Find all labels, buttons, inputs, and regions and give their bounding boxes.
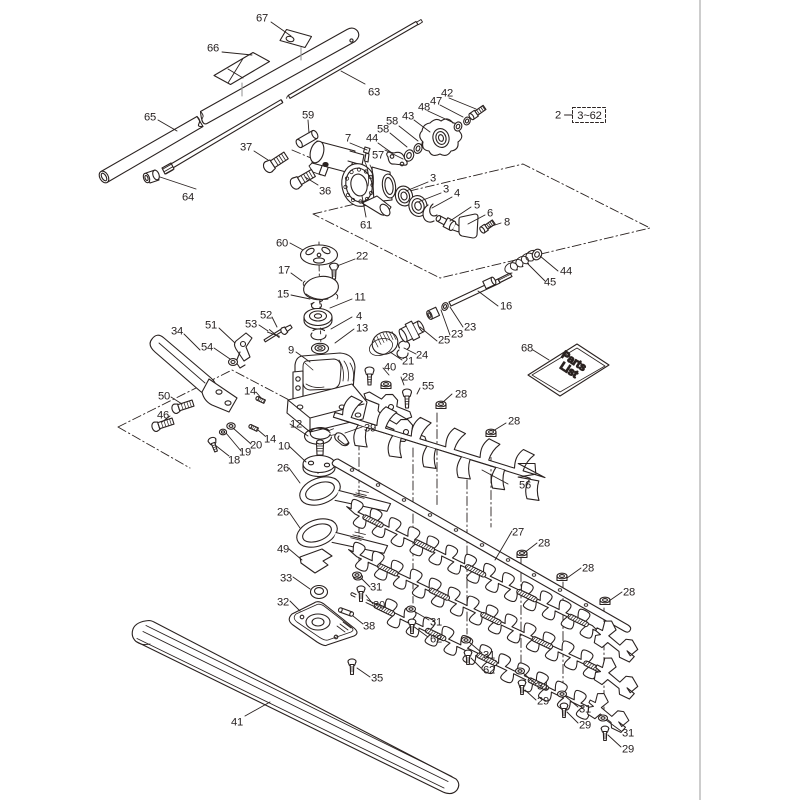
svg-text:61: 61 — [360, 220, 372, 232]
svg-text:5: 5 — [474, 200, 480, 212]
svg-text:49: 49 — [277, 544, 289, 556]
svg-text:28: 28 — [455, 389, 467, 401]
svg-text:31: 31 — [579, 704, 591, 716]
svg-text:24: 24 — [416, 350, 428, 362]
svg-text:3~62: 3~62 — [577, 110, 601, 122]
svg-text:56: 56 — [519, 480, 531, 492]
svg-text:21: 21 — [402, 356, 414, 368]
svg-text:11: 11 — [354, 292, 365, 304]
svg-text:14: 14 — [264, 434, 276, 446]
svg-text:31: 31 — [483, 650, 495, 662]
svg-text:31: 31 — [430, 617, 442, 629]
svg-text:15: 15 — [277, 289, 289, 301]
svg-text:33: 33 — [280, 573, 292, 585]
svg-text:3: 3 — [430, 173, 436, 185]
svg-text:29: 29 — [579, 720, 591, 732]
svg-text:52: 52 — [260, 310, 272, 322]
svg-text:53: 53 — [245, 319, 257, 331]
svg-text:10: 10 — [278, 441, 290, 453]
svg-text:60: 60 — [276, 238, 288, 250]
svg-text:26: 26 — [277, 463, 289, 475]
svg-text:63: 63 — [368, 87, 380, 99]
svg-text:27: 27 — [512, 527, 524, 539]
svg-text:9: 9 — [288, 345, 294, 357]
svg-text:22: 22 — [356, 251, 368, 263]
svg-text:2: 2 — [555, 110, 561, 122]
svg-text:31: 31 — [537, 681, 549, 693]
svg-text:65: 65 — [144, 112, 156, 124]
svg-text:59: 59 — [302, 110, 314, 122]
svg-text:31: 31 — [622, 728, 634, 740]
svg-text:6: 6 — [487, 208, 493, 220]
svg-text:4: 4 — [356, 311, 362, 323]
svg-text:50: 50 — [158, 391, 170, 403]
svg-text:58: 58 — [386, 116, 398, 128]
svg-text:55: 55 — [422, 381, 434, 393]
svg-text:28: 28 — [623, 587, 635, 599]
svg-text:68: 68 — [521, 343, 533, 355]
svg-text:29: 29 — [622, 744, 634, 756]
svg-text:35: 35 — [371, 673, 383, 685]
svg-text:40: 40 — [384, 362, 396, 374]
svg-text:23: 23 — [464, 322, 476, 334]
svg-text:54: 54 — [201, 342, 213, 354]
svg-text:36: 36 — [319, 186, 331, 198]
svg-text:57: 57 — [372, 150, 384, 162]
svg-text:12: 12 — [290, 419, 302, 431]
svg-text:62: 62 — [430, 634, 442, 646]
svg-text:31: 31 — [370, 582, 382, 594]
svg-text:38: 38 — [363, 621, 375, 633]
svg-text:18: 18 — [228, 455, 240, 467]
svg-text:39: 39 — [364, 423, 376, 435]
svg-text:41: 41 — [231, 717, 243, 729]
svg-text:19: 19 — [239, 447, 251, 459]
svg-text:67: 67 — [256, 13, 268, 25]
svg-text:23: 23 — [451, 329, 463, 341]
svg-text:4: 4 — [454, 188, 460, 200]
svg-text:25: 25 — [438, 335, 450, 347]
svg-text:43: 43 — [402, 111, 414, 123]
svg-text:46: 46 — [157, 410, 169, 422]
svg-text:16: 16 — [500, 301, 512, 313]
svg-text:44: 44 — [560, 266, 572, 278]
svg-text:7: 7 — [345, 133, 351, 145]
svg-text:32: 32 — [277, 597, 289, 609]
svg-text:28: 28 — [582, 563, 594, 575]
svg-text:42: 42 — [441, 88, 453, 100]
svg-text:17: 17 — [278, 265, 290, 277]
svg-text:14: 14 — [244, 386, 256, 398]
svg-text:64: 64 — [182, 192, 194, 204]
svg-text:28: 28 — [538, 538, 550, 550]
svg-text:62: 62 — [483, 665, 495, 677]
svg-text:26: 26 — [277, 507, 289, 519]
svg-text:45: 45 — [544, 277, 556, 289]
svg-text:34: 34 — [171, 326, 183, 338]
svg-text:29: 29 — [537, 696, 549, 708]
svg-text:51: 51 — [205, 320, 217, 332]
svg-text:48: 48 — [418, 102, 430, 114]
svg-text:66: 66 — [207, 43, 219, 55]
svg-text:8: 8 — [504, 217, 510, 229]
svg-text:30: 30 — [373, 600, 385, 612]
svg-text:13: 13 — [356, 323, 368, 335]
svg-text:3: 3 — [443, 184, 449, 196]
svg-text:28: 28 — [508, 416, 520, 428]
svg-text:20: 20 — [250, 440, 262, 452]
svg-text:28: 28 — [402, 372, 414, 384]
svg-text:37: 37 — [240, 142, 252, 154]
